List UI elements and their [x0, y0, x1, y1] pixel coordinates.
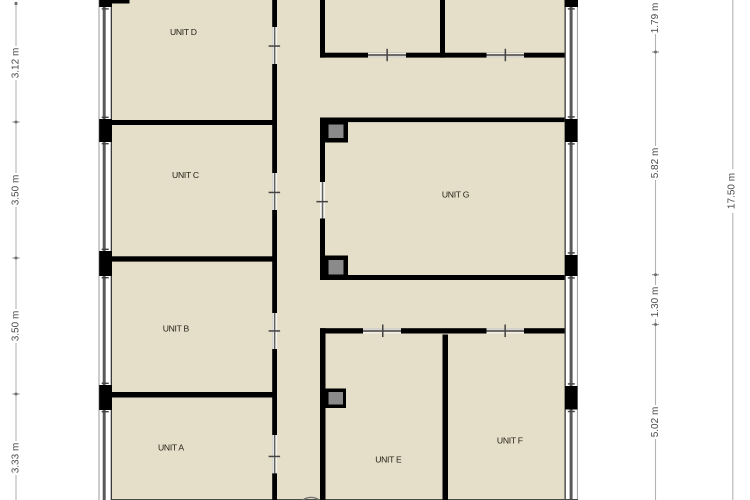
svg-text:UNIT A: UNIT A [158, 443, 184, 453]
svg-text:3.50 m: 3.50 m [11, 175, 22, 206]
svg-text:1.30 m: 1.30 m [650, 287, 661, 318]
svg-text:UNIT E: UNIT E [375, 454, 402, 464]
svg-text:3.50 m: 3.50 m [11, 311, 22, 342]
svg-text:17.50 m: 17.50 m [727, 173, 738, 209]
svg-text:UNIT G: UNIT G [442, 189, 470, 199]
svg-text:1.79 m: 1.79 m [650, 3, 661, 34]
svg-text:5.82 m: 5.82 m [650, 148, 661, 179]
svg-text:UNIT C: UNIT C [172, 170, 199, 180]
svg-text:UNIT F: UNIT F [497, 435, 523, 445]
svg-text:5.02 m: 5.02 m [650, 407, 661, 438]
svg-text:3.33 m: 3.33 m [11, 443, 22, 474]
svg-text:UNIT B: UNIT B [163, 324, 190, 334]
svg-text:UNIT D: UNIT D [170, 27, 197, 37]
svg-text:3.12 m: 3.12 m [11, 48, 22, 79]
